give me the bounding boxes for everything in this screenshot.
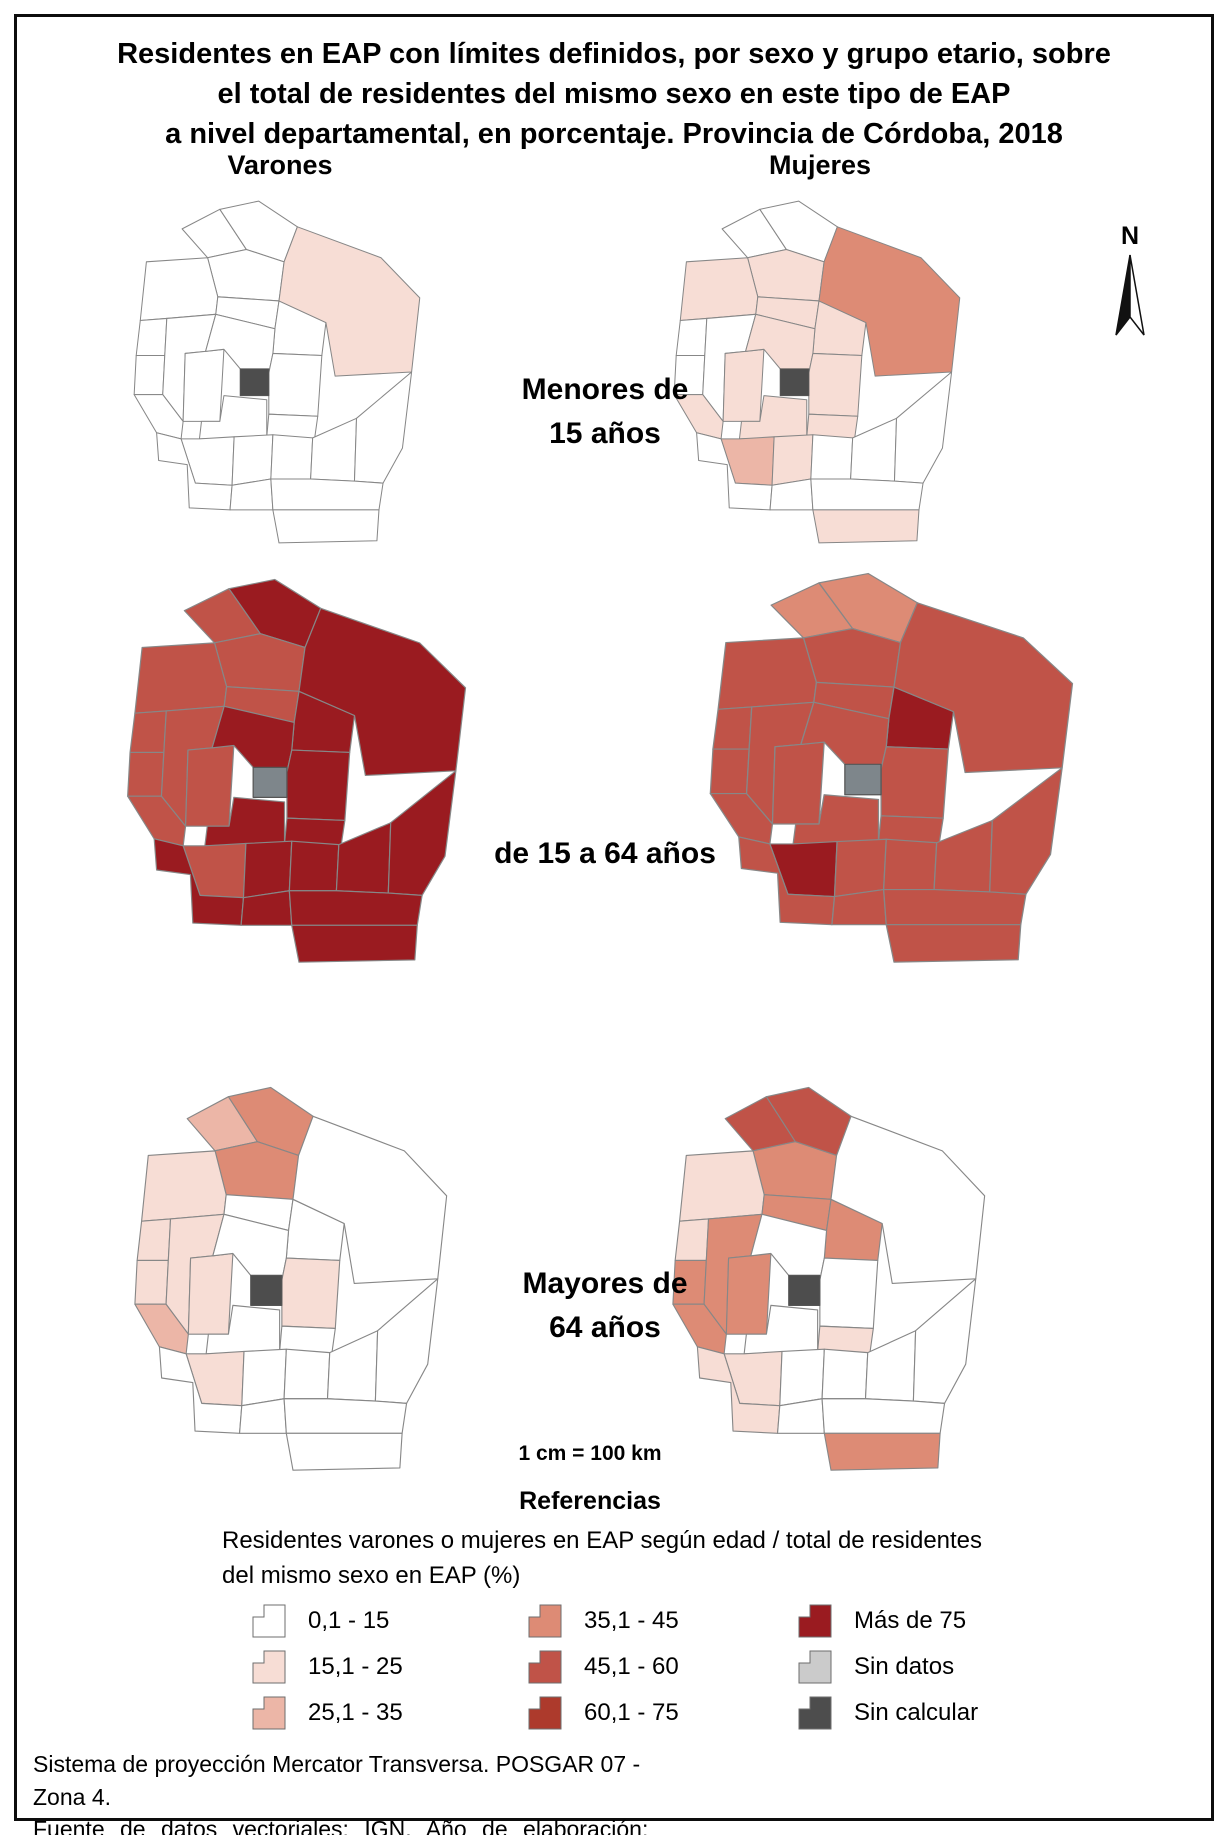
department-general-san-martin — [884, 839, 937, 889]
legend-heading: Referencias — [440, 1487, 740, 1516]
legend-label: Más de 75 — [854, 1607, 966, 1635]
department-general-san-martin — [811, 435, 853, 479]
legend-label: 15,1 - 25 — [308, 1653, 403, 1681]
department-pres-saenz-pena — [822, 1399, 944, 1434]
department-union — [336, 823, 390, 893]
department-rio-primero — [881, 747, 948, 818]
department-punilla — [772, 742, 824, 824]
map-figure-page: Residentes en EAP con límites definidos,… — [0, 0, 1228, 1835]
department-pocho — [710, 749, 749, 793]
row-label-15-64-line1: de 15 a 64 años — [455, 832, 755, 876]
map-mujeres-15-64 — [700, 570, 1088, 968]
department-union — [851, 418, 897, 481]
department-tercero-arriba — [243, 841, 291, 897]
row-label-mayores-64-line1: Mayores de — [455, 1262, 755, 1306]
footer-projection-note: Sistema de proyección Mercator Transvers… — [33, 1748, 673, 1813]
department-union — [866, 1331, 916, 1401]
department-marcos-juarez — [388, 771, 456, 896]
department-minas — [713, 707, 752, 749]
department-rio-primero — [809, 353, 862, 416]
legend-swatch-c5 — [528, 1696, 562, 1730]
choropleth-v1 — [126, 198, 432, 548]
legend-swatch-sd — [798, 1650, 832, 1684]
legend-swatch-sc — [798, 1696, 832, 1730]
department-general-san-martin — [284, 1349, 330, 1399]
row-label-15-64: de 15 a 64 años — [455, 832, 755, 876]
department-general-roca — [886, 925, 1021, 962]
north-arrow: N — [1106, 222, 1154, 344]
map-varones-menores-15 — [126, 198, 432, 548]
column-header-mujeres: Mujeres — [660, 150, 980, 181]
department-pres-saenz-pena — [884, 890, 1026, 925]
figure-title: Residentes en EAP con límites definidos,… — [40, 34, 1188, 154]
figure-title-line2: el total de residentes del mismo sexo en… — [40, 74, 1188, 114]
column-header-varones: Varones — [120, 150, 440, 181]
department-pres-saenz-pena — [271, 479, 383, 510]
legend: 0,1 - 1515,1 - 2525,1 - 3535,1 - 4545,1 … — [0, 1604, 1228, 1744]
choropleth-v3 — [126, 1084, 460, 1476]
department-pres-saenz-pena — [811, 479, 923, 510]
row-label-mayores-64: Mayores de 64 años — [455, 1262, 755, 1349]
department-general-roca — [292, 925, 417, 962]
department-rio-primero — [820, 1258, 878, 1328]
department-pocho — [128, 752, 164, 796]
legend-item: Sin calcular — [798, 1696, 978, 1730]
department-marcos-juarez — [354, 372, 411, 483]
department-punilla — [186, 745, 234, 826]
department-union — [934, 821, 992, 892]
department-union — [311, 418, 357, 481]
department-rio-primero — [287, 750, 350, 820]
legend-item: 45,1 - 60 — [528, 1650, 679, 1684]
department-minas — [130, 711, 166, 753]
department-minas — [136, 318, 167, 355]
department-marcos-juarez — [375, 1279, 437, 1404]
department-capital — [251, 1275, 282, 1305]
footer-source-note: Fuente de datos vectoriales: IGN. Año de… — [33, 1813, 673, 1835]
legend-column-2: 35,1 - 4545,1 - 6060,1 - 75 — [528, 1604, 679, 1730]
row-label-menores-15-line1: Menores de — [455, 368, 755, 412]
department-minas — [675, 1219, 708, 1261]
legend-item: Sin datos — [798, 1650, 978, 1684]
legend-swatch-c1 — [252, 1650, 286, 1684]
department-union — [328, 1331, 378, 1401]
row-label-mayores-64-line2: 64 años — [455, 1306, 755, 1350]
department-general-san-martin — [271, 435, 313, 479]
department-capital — [253, 767, 287, 797]
department-capital — [789, 1275, 820, 1305]
legend-label: 0,1 - 15 — [308, 1607, 389, 1635]
department-tercero-arriba — [242, 1349, 287, 1405]
department-tercero-arriba — [835, 839, 887, 896]
choropleth-v2 — [118, 576, 480, 968]
department-general-roca — [273, 510, 379, 543]
legend-item: 25,1 - 35 — [252, 1696, 403, 1730]
department-rio-primero — [282, 1258, 340, 1328]
department-tercero-arriba — [772, 435, 813, 485]
legend-swatch-c4 — [528, 1650, 562, 1684]
department-rio-primero — [269, 353, 322, 416]
department-marcos-juarez — [913, 1279, 975, 1404]
legend-label: 35,1 - 45 — [584, 1607, 679, 1635]
department-tercero-arriba — [780, 1349, 825, 1405]
legend-item: Más de 75 — [798, 1604, 978, 1638]
department-pocho — [134, 356, 165, 395]
north-arrow-icon — [1110, 253, 1150, 339]
department-general-roca — [286, 1433, 402, 1470]
department-capital — [845, 764, 881, 794]
north-arrow-label: N — [1106, 222, 1154, 251]
row-label-menores-15: Menores de 15 años — [455, 368, 755, 455]
map-varones-15-64 — [118, 576, 480, 968]
legend-item: 0,1 - 15 — [252, 1604, 403, 1638]
department-tercero-arriba — [232, 435, 273, 485]
legend-label: Sin datos — [854, 1653, 954, 1681]
legend-item: 35,1 - 45 — [528, 1604, 679, 1638]
legend-column-1: 0,1 - 1515,1 - 2525,1 - 35 — [252, 1604, 403, 1730]
department-general-roca — [813, 510, 919, 543]
department-cruz-del-eje — [135, 643, 227, 713]
department-minas — [676, 318, 707, 355]
department-cruz-del-eje — [718, 638, 816, 709]
legend-label: Sin calcular — [854, 1699, 978, 1727]
legend-swatch-c2 — [252, 1696, 286, 1730]
legend-description-line1: Residentes varones o mujeres en EAP segú… — [222, 1524, 1012, 1559]
department-pres-saenz-pena — [289, 891, 422, 926]
figure-title-line1: Residentes en EAP con límites definidos,… — [40, 34, 1188, 74]
department-cruz-del-eje — [140, 258, 218, 321]
department-marcos-juarez — [990, 768, 1062, 894]
department-general-roca — [824, 1433, 940, 1470]
department-marcos-juarez — [894, 372, 951, 483]
scale-text: 1 cm = 100 km — [440, 1442, 740, 1466]
legend-swatch-c3 — [528, 1604, 562, 1638]
department-pocho — [135, 1260, 168, 1304]
department-punilla — [188, 1253, 233, 1334]
footer: Sistema de proyección Mercator Transvers… — [33, 1748, 673, 1835]
map-varones-mayores-64 — [126, 1084, 460, 1476]
legend-column-3: Más de 75Sin datosSin calcular — [798, 1604, 978, 1730]
legend-swatch-c0 — [252, 1604, 286, 1638]
department-pres-saenz-pena — [284, 1399, 406, 1434]
department-minas — [137, 1219, 170, 1261]
department-capital — [240, 369, 269, 396]
legend-label: 25,1 - 35 — [308, 1699, 403, 1727]
figure-title-line3: a nivel departamental, en porcentaje. Pr… — [40, 114, 1188, 154]
department-cruz-del-eje — [680, 1151, 765, 1221]
department-punilla — [183, 349, 224, 421]
department-general-san-martin — [822, 1349, 868, 1399]
department-cruz-del-eje — [680, 258, 758, 321]
legend-swatch-c6 — [798, 1604, 832, 1638]
choropleth-m2 — [700, 570, 1088, 968]
legend-label: 60,1 - 75 — [584, 1699, 679, 1727]
legend-label: 45,1 - 60 — [584, 1653, 679, 1681]
department-general-san-martin — [289, 841, 338, 891]
department-capital — [780, 369, 809, 396]
legend-description: Residentes varones o mujeres en EAP segú… — [222, 1524, 1012, 1594]
row-label-menores-15-line2: 15 años — [455, 412, 755, 456]
legend-description-line2: del mismo sexo en EAP (%) — [222, 1559, 1012, 1594]
legend-item: 60,1 - 75 — [528, 1696, 679, 1730]
legend-item: 15,1 - 25 — [252, 1650, 403, 1684]
department-cruz-del-eje — [142, 1151, 227, 1221]
